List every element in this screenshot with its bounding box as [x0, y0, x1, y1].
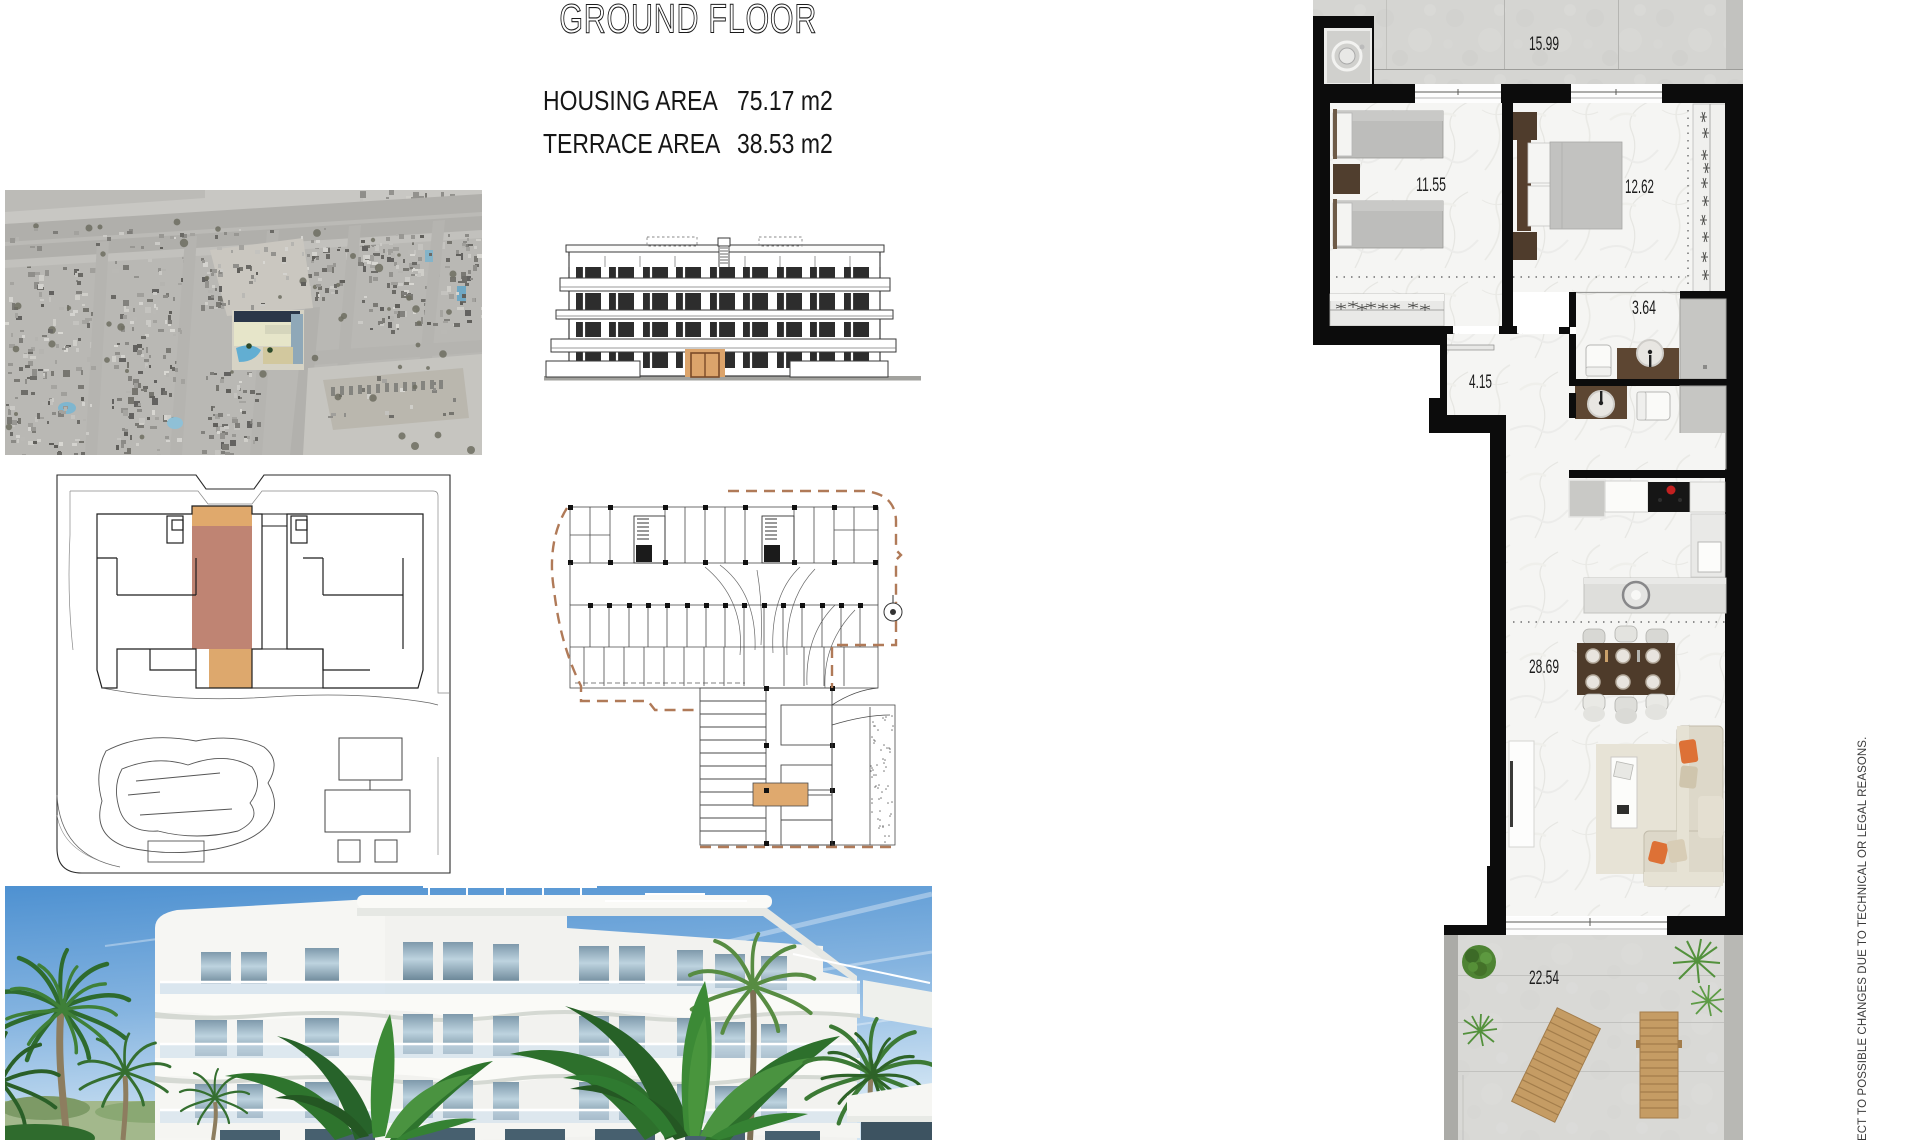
svg-text:11.55: 11.55	[1416, 175, 1446, 196]
svg-text:22.54: 22.54	[1529, 968, 1559, 989]
svg-text:15.99: 15.99	[1529, 34, 1559, 55]
svg-text:3.64: 3.64	[1632, 298, 1656, 319]
svg-text:28.69: 28.69	[1529, 657, 1559, 678]
svg-text:GROUND FLOOR: GROUND FLOOR	[559, 0, 817, 42]
svg-text:12.62: 12.62	[1625, 177, 1654, 198]
svg-text:4.15: 4.15	[1469, 372, 1492, 393]
